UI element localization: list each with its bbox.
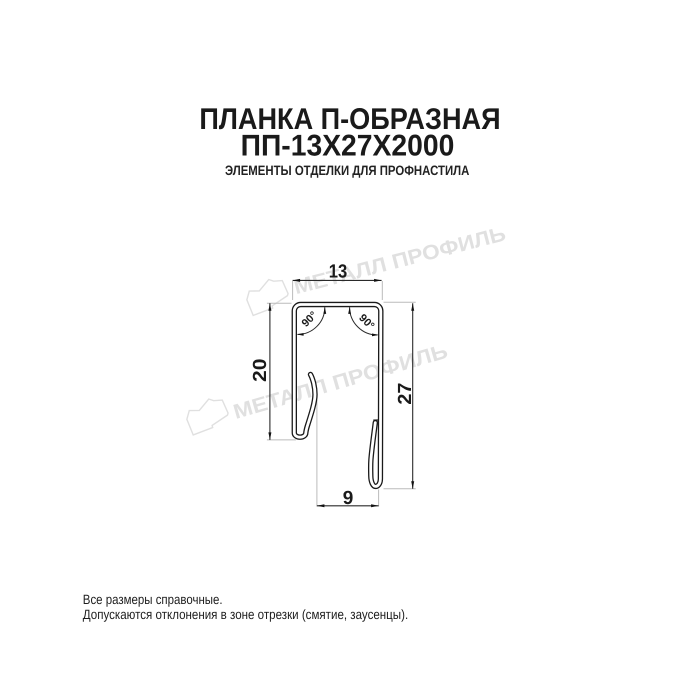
svg-text:20: 20	[250, 359, 271, 383]
svg-text:ПП-13Х27Х2000: ПП-13Х27Х2000	[241, 130, 455, 163]
svg-text:ЭЛЕМЕНТЫ ОТДЕЛКИ ДЛЯ ПРОФНАСТИ: ЭЛЕМЕНТЫ ОТДЕЛКИ ДЛЯ ПРОФНАСТИЛА	[225, 163, 469, 178]
svg-text:Допускаются отклонения в зоне: Допускаются отклонения в зоне отрезки (с…	[83, 607, 408, 622]
svg-text:Все размеры справочные.: Все размеры справочные.	[83, 592, 223, 607]
svg-text:МЕТАЛЛ ПРОФИЛЬ: МЕТАЛЛ ПРОФИЛЬ	[291, 222, 508, 299]
svg-text:9: 9	[343, 488, 354, 509]
svg-text:27: 27	[395, 383, 416, 405]
svg-text:90°: 90°	[356, 312, 376, 332]
svg-text:13: 13	[329, 262, 348, 283]
